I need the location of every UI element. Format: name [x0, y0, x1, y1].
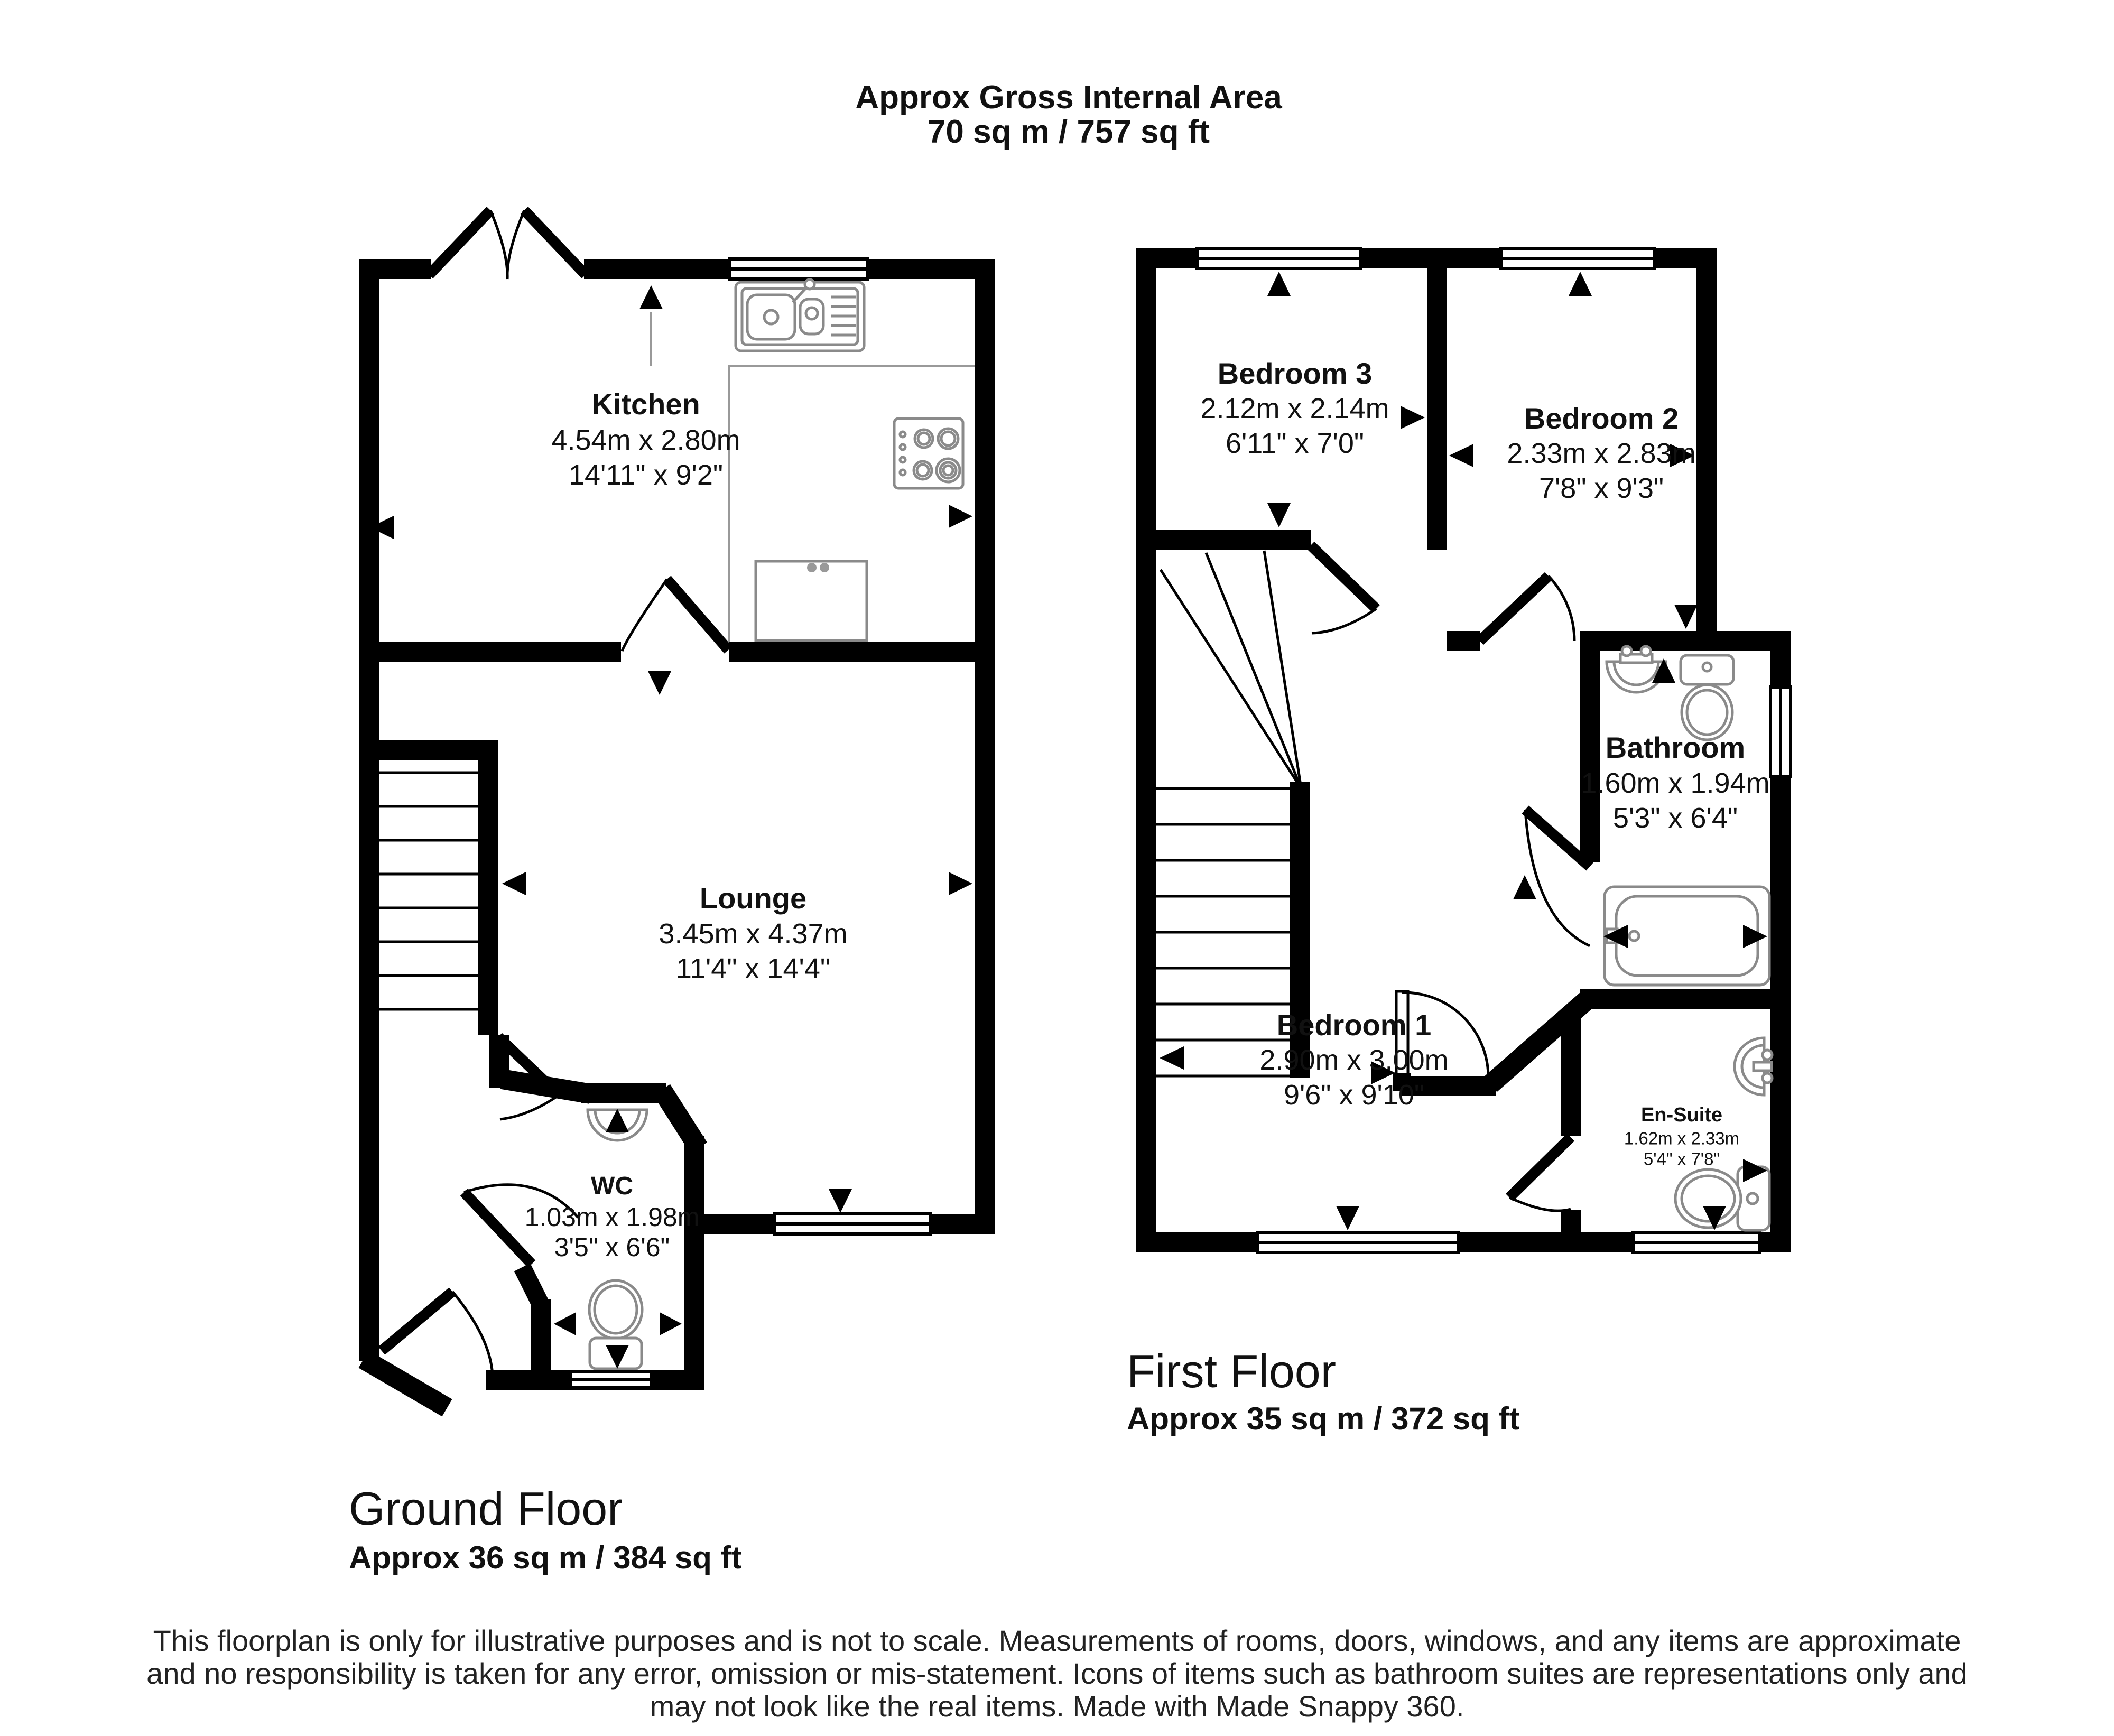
- bedroom2-dim-metric: 2.33m x 2.83m: [1507, 439, 1695, 468]
- bedroom1-dim-imperial: 9'6" x 9'10": [1284, 1081, 1424, 1109]
- ensuite-dim-imperial: 5'4" x 7'8": [1644, 1150, 1720, 1168]
- bathroom-toilet-icon: [1681, 655, 1733, 740]
- ensuite-toilet-icon: [1675, 1167, 1769, 1230]
- ensuite-sink-icon: [1735, 1038, 1772, 1095]
- kitchen-dim-imperial: 14'11" x 9'2": [569, 461, 723, 489]
- stairs-icon: [1156, 551, 1301, 1076]
- page-title-line2: 70 sq m / 757 sq ft: [928, 116, 1210, 148]
- disclaimer-line1: This floorplan is only for illustrative …: [153, 1626, 1961, 1656]
- bedroom1-dim-metric: 2.90m x 3.00m: [1259, 1046, 1448, 1074]
- page-title-line1: Approx Gross Internal Area: [855, 81, 1282, 114]
- bedroom3-dim-imperial: 6'11" x 7'0": [1226, 429, 1364, 458]
- floorplan-page: Approx Gross Internal Area 70 sq m / 757…: [0, 0, 2114, 1736]
- appliance-icon: [756, 561, 867, 640]
- kitchen-label: Kitchen: [591, 389, 700, 419]
- lounge-label: Lounge: [700, 884, 806, 913]
- disclaimer-line2: and no responsibility is taken for any e…: [146, 1659, 1968, 1688]
- bathroom-sink-icon: [1607, 646, 1666, 692]
- ground-floor-area: Approx 36 sq m / 384 sq ft: [349, 1542, 742, 1574]
- kitchen-dim-metric: 4.54m x 2.80m: [551, 426, 740, 454]
- ground-floor-title: Ground Floor: [349, 1486, 623, 1532]
- first-floor-area: Approx 35 sq m / 372 sq ft: [1127, 1403, 1520, 1435]
- wc-label: WC: [591, 1174, 633, 1199]
- disclaimer-line3: may not look like the real items. Made w…: [650, 1692, 1464, 1721]
- bathroom-label: Bathroom: [1606, 733, 1745, 763]
- stairs-icon: [379, 773, 478, 1009]
- first-floor-title: First Floor: [1127, 1348, 1336, 1395]
- wc-dim-metric: 1.03m x 1.98m: [525, 1204, 700, 1230]
- ensuite-dim-metric: 1.62m x 2.33m: [1624, 1130, 1739, 1147]
- bedroom2-dim-imperial: 7'8" x 9'3": [1539, 474, 1664, 503]
- bedroom2-label: Bedroom 2: [1524, 404, 1679, 433]
- bathroom-dim-metric: 1.60m x 1.94m: [1581, 769, 1769, 797]
- bathroom-dim-imperial: 5'3" x 6'4": [1613, 804, 1738, 832]
- bedroom1-label: Bedroom 1: [1277, 1010, 1432, 1040]
- lounge-dim-imperial: 11'4" x 14'4": [676, 954, 830, 983]
- kitchen-sink-icon: [736, 280, 864, 351]
- floorplan-canvas: [0, 0, 2114, 1736]
- ensuite-label: En-Suite: [1641, 1105, 1722, 1125]
- bedroom3-dim-metric: 2.12m x 2.14m: [1200, 394, 1389, 423]
- lounge-dim-metric: 3.45m x 4.37m: [659, 920, 847, 948]
- hob-icon: [894, 419, 963, 488]
- bedroom3-label: Bedroom 3: [1218, 359, 1373, 388]
- wc-dim-imperial: 3'5" x 6'6": [554, 1234, 670, 1260]
